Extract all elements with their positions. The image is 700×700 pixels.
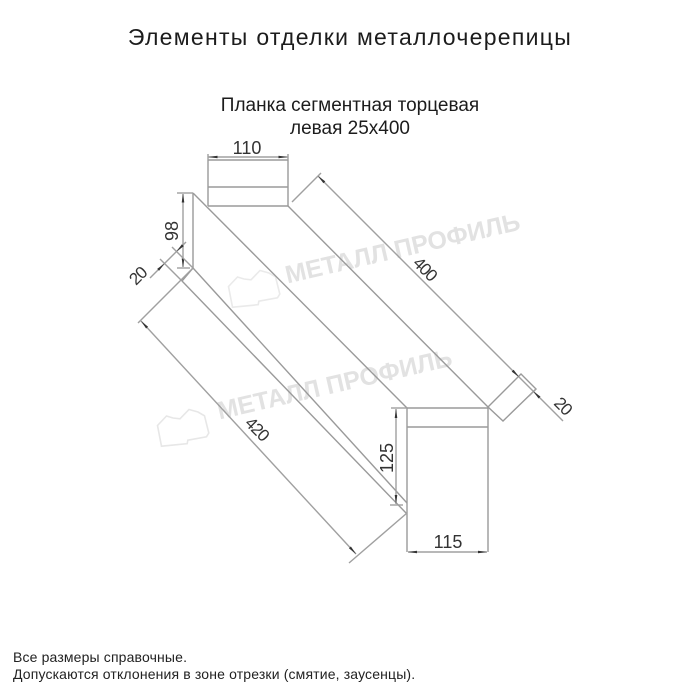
svg-text:20: 20	[550, 393, 576, 419]
svg-text:115: 115	[434, 532, 463, 552]
svg-text:125: 125	[377, 443, 397, 473]
svg-text:МЕТАЛЛ ПРОФИЛЬ: МЕТАЛЛ ПРОФИЛЬ	[283, 208, 523, 289]
svg-text:МЕТАЛЛ ПРОФИЛЬ: МЕТАЛЛ ПРОФИЛЬ	[215, 344, 455, 425]
svg-text:20: 20	[125, 263, 151, 289]
svg-text:110: 110	[233, 138, 262, 158]
svg-text:98: 98	[162, 221, 182, 241]
